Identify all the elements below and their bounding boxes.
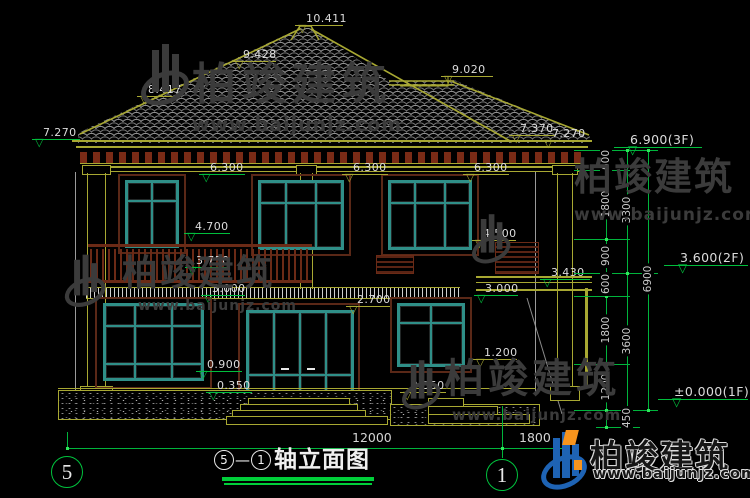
- watermark-logo: [471, 213, 513, 266]
- brand-url: www.baijunjz.com: [593, 466, 750, 482]
- watermark-logo: [140, 42, 192, 108]
- floor-elevation-mark-1f: ±0.000(1F)▽: [658, 385, 748, 400]
- elevation-mark: 6.300▽: [199, 162, 245, 175]
- window-2f-left: [125, 180, 179, 248]
- elevation-mark: 7.270▽: [541, 128, 587, 141]
- dim-text: 600: [600, 272, 612, 296]
- dim-text: 6900: [642, 264, 654, 295]
- elevation-mark: 6.300▽: [342, 162, 388, 175]
- ext-line: [574, 239, 630, 240]
- window-1f-left: [103, 303, 204, 381]
- brand-logo-icon: [540, 430, 590, 488]
- cad-elevation-drawing: 10.411▽ 9.428▽ 8.417▽ 9.020▽ 7.370▽ 7.27…: [0, 0, 750, 498]
- elevation-mark: 10.411▽: [295, 13, 343, 26]
- drawing-title: 5 — 1 轴立面图: [214, 448, 370, 472]
- axis-bubble-5: 5: [51, 456, 83, 488]
- elevation-mark: 7.270▽: [32, 127, 80, 140]
- title-underline-thick: [222, 477, 374, 481]
- title-axis-circle-5: 5: [214, 450, 234, 470]
- elevation-mark: 3.000▽: [474, 283, 518, 296]
- axis-bubble-1: 1: [486, 459, 518, 491]
- watermark-logo: [401, 359, 443, 412]
- watermark: 柏竣建筑 www.baijunjz.com: [444, 346, 621, 424]
- door-handle-left: [281, 368, 289, 370]
- watermark: 柏竣建筑 www.baijunjz.com: [192, 48, 402, 136]
- door-step-4: [226, 416, 388, 425]
- dim-text: 1800: [600, 315, 612, 346]
- watermark-logo: [64, 253, 108, 309]
- title-underline-thin: [224, 483, 372, 485]
- door-handle-right: [307, 368, 315, 370]
- title-dash: —: [235, 451, 250, 469]
- title-axis-circle-1: 1: [251, 450, 271, 470]
- window-2f-right: [388, 180, 472, 250]
- ext-line: [574, 296, 630, 297]
- dim-text: 3600: [621, 326, 633, 357]
- watermark: 柏竣建筑 www.baijunjz.com: [574, 146, 750, 225]
- balcony-planter-box: [376, 255, 414, 274]
- dim-text: 900: [600, 244, 612, 268]
- watermark: 柏竣建筑 www.baijunjz.com: [122, 244, 297, 314]
- elevation-mark: 2.700▽: [346, 294, 390, 307]
- elevation-mark: 4.700▽: [184, 221, 230, 234]
- dim-text-12000: 12000: [352, 430, 392, 445]
- elevation-mark: 9.020▽: [441, 64, 493, 77]
- title-text: 轴立面图: [274, 448, 370, 472]
- floor-elevation-mark-2f: 3.600(2F)▽: [664, 251, 748, 266]
- elevation-mark: 0.350▽: [206, 380, 252, 393]
- window-2f-center: [258, 180, 344, 250]
- cornice-step-line: [76, 146, 588, 148]
- elevation-mark: 6.300▽: [463, 162, 509, 175]
- brand-footer: 柏竣建筑 www.baijunjz.com: [538, 426, 750, 492]
- elevation-mark: 0.900▽: [196, 359, 242, 372]
